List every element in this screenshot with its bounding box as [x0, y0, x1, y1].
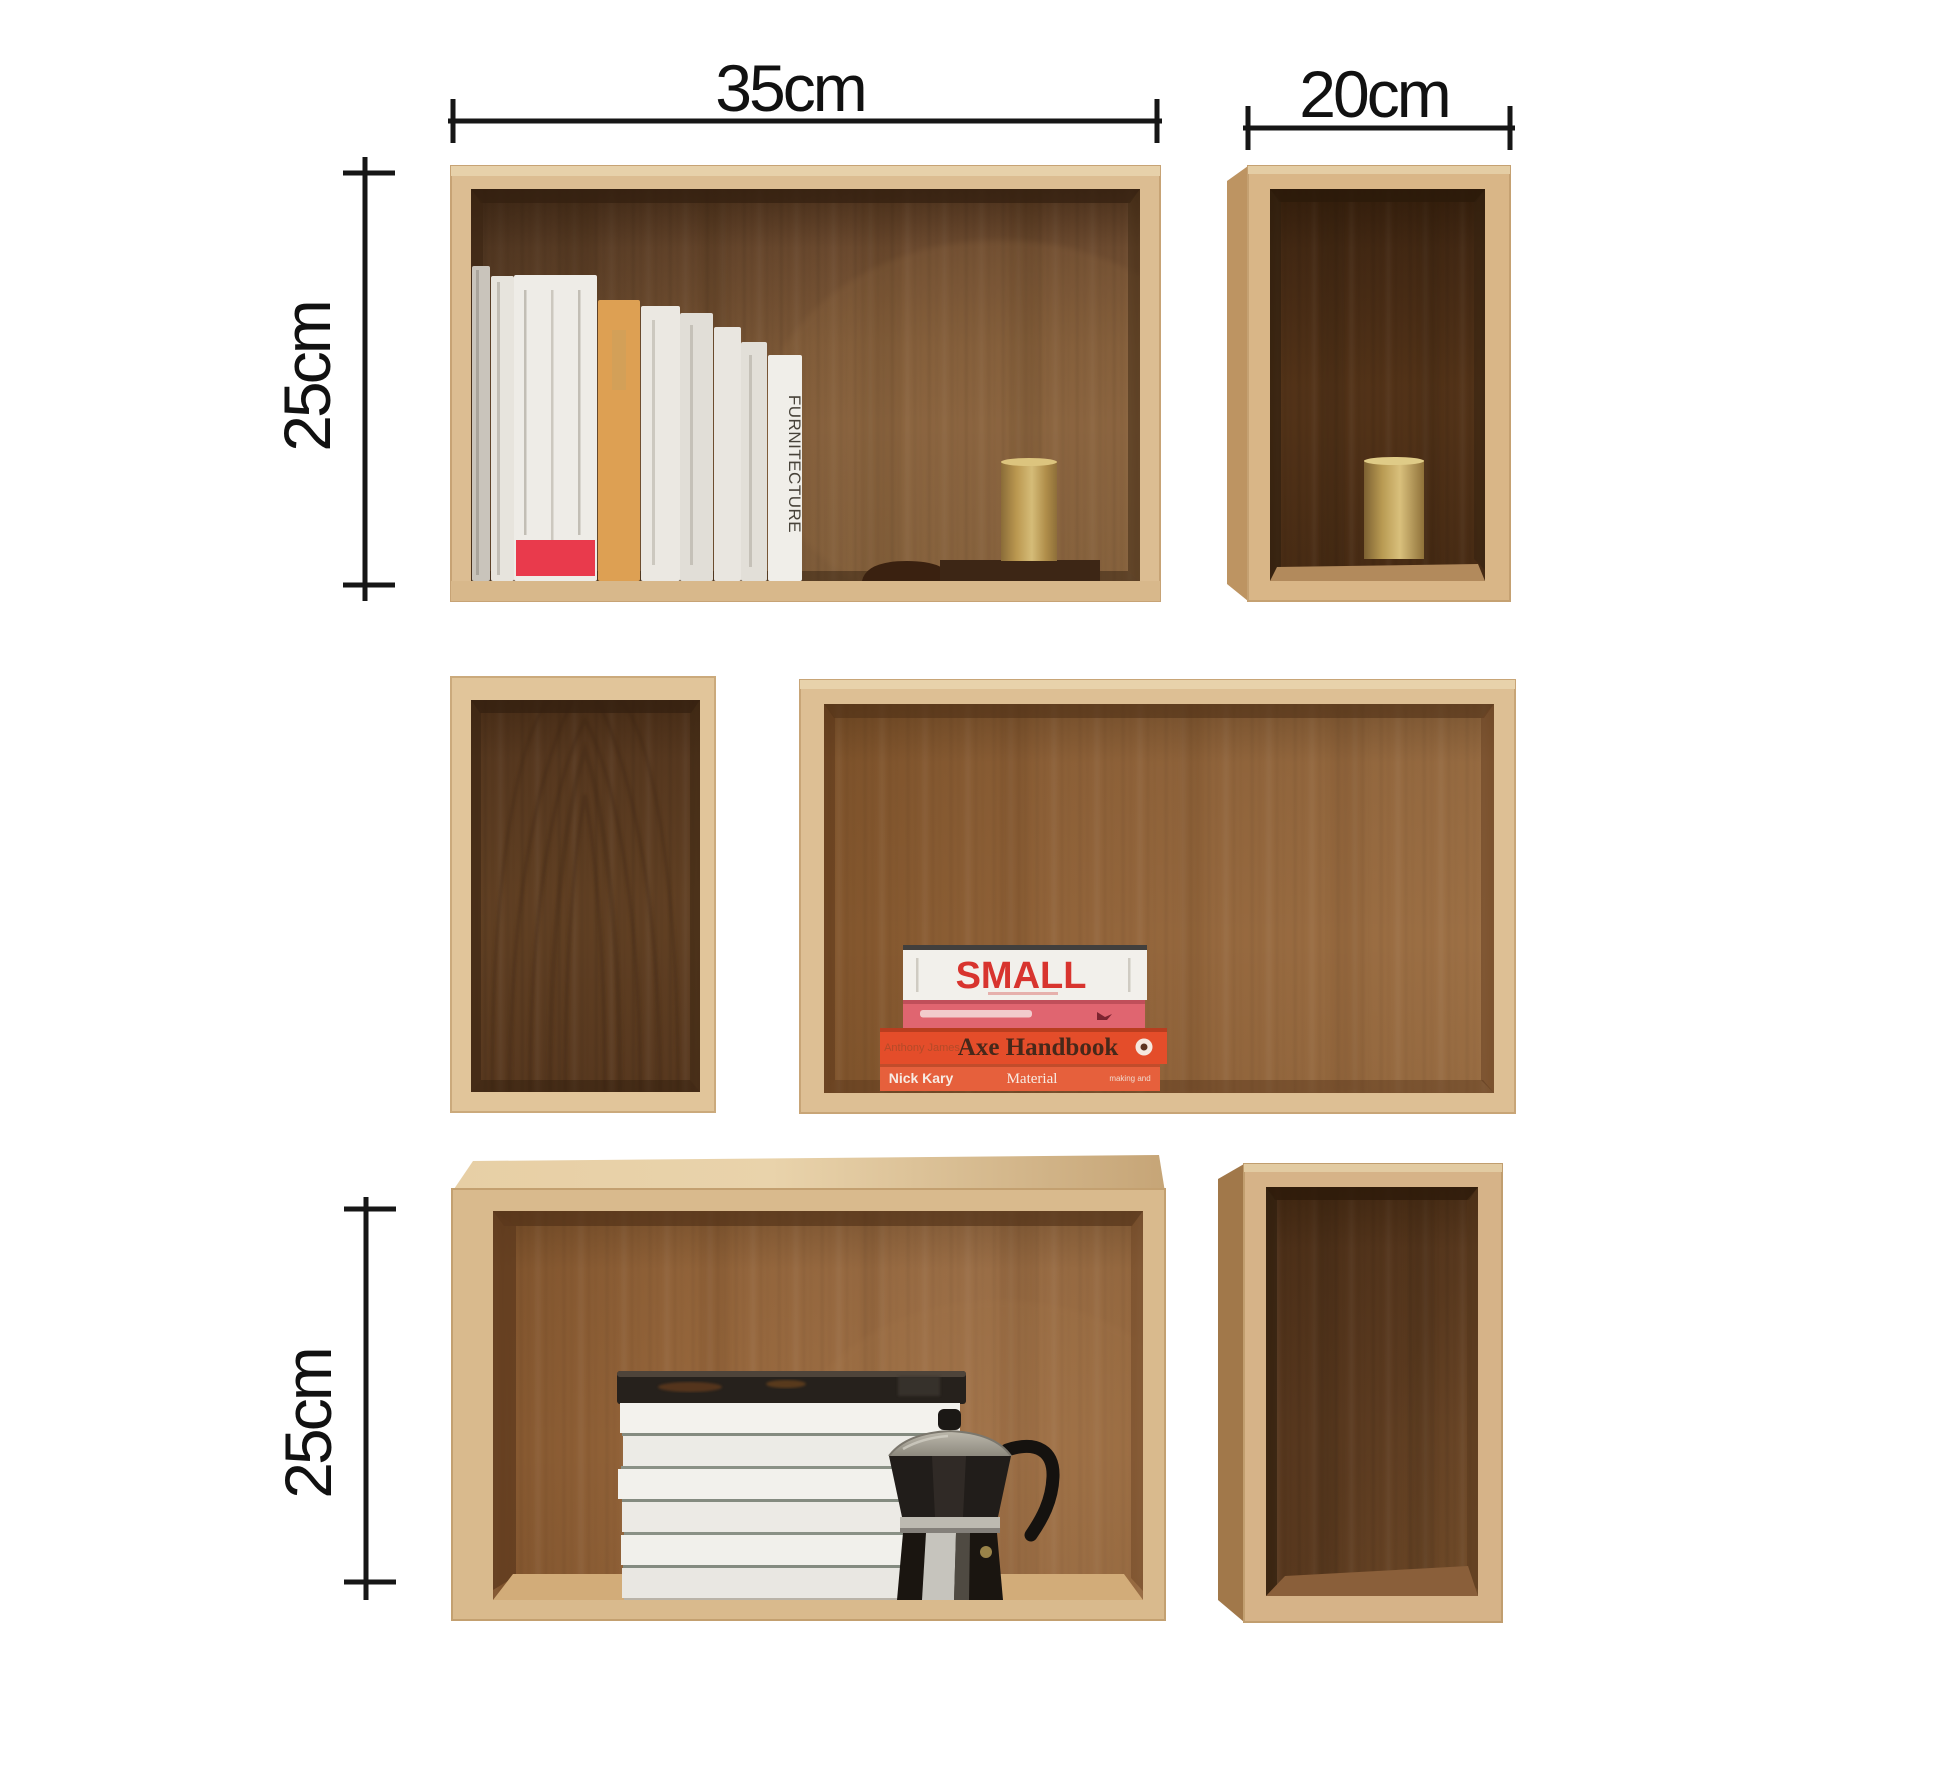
svg-text:25cm: 25cm [270, 302, 344, 451]
svg-text:FURNITECTURE: FURNITECTURE [785, 395, 804, 533]
svg-text:20cm: 20cm [1299, 57, 1448, 131]
svg-text:Anthony James: Anthony James [884, 1042, 960, 1054]
svg-text:Axe Handbook: Axe Handbook [958, 1034, 1119, 1061]
svg-text:35cm: 35cm [715, 51, 864, 125]
svg-text:25cm: 25cm [271, 1349, 345, 1498]
svg-text:making and: making and [1109, 1074, 1150, 1083]
svg-text:Material: Material [1007, 1071, 1058, 1087]
svg-text:SMALL: SMALL [956, 955, 1087, 997]
svg-text:Nick Kary: Nick Kary [889, 1070, 954, 1086]
